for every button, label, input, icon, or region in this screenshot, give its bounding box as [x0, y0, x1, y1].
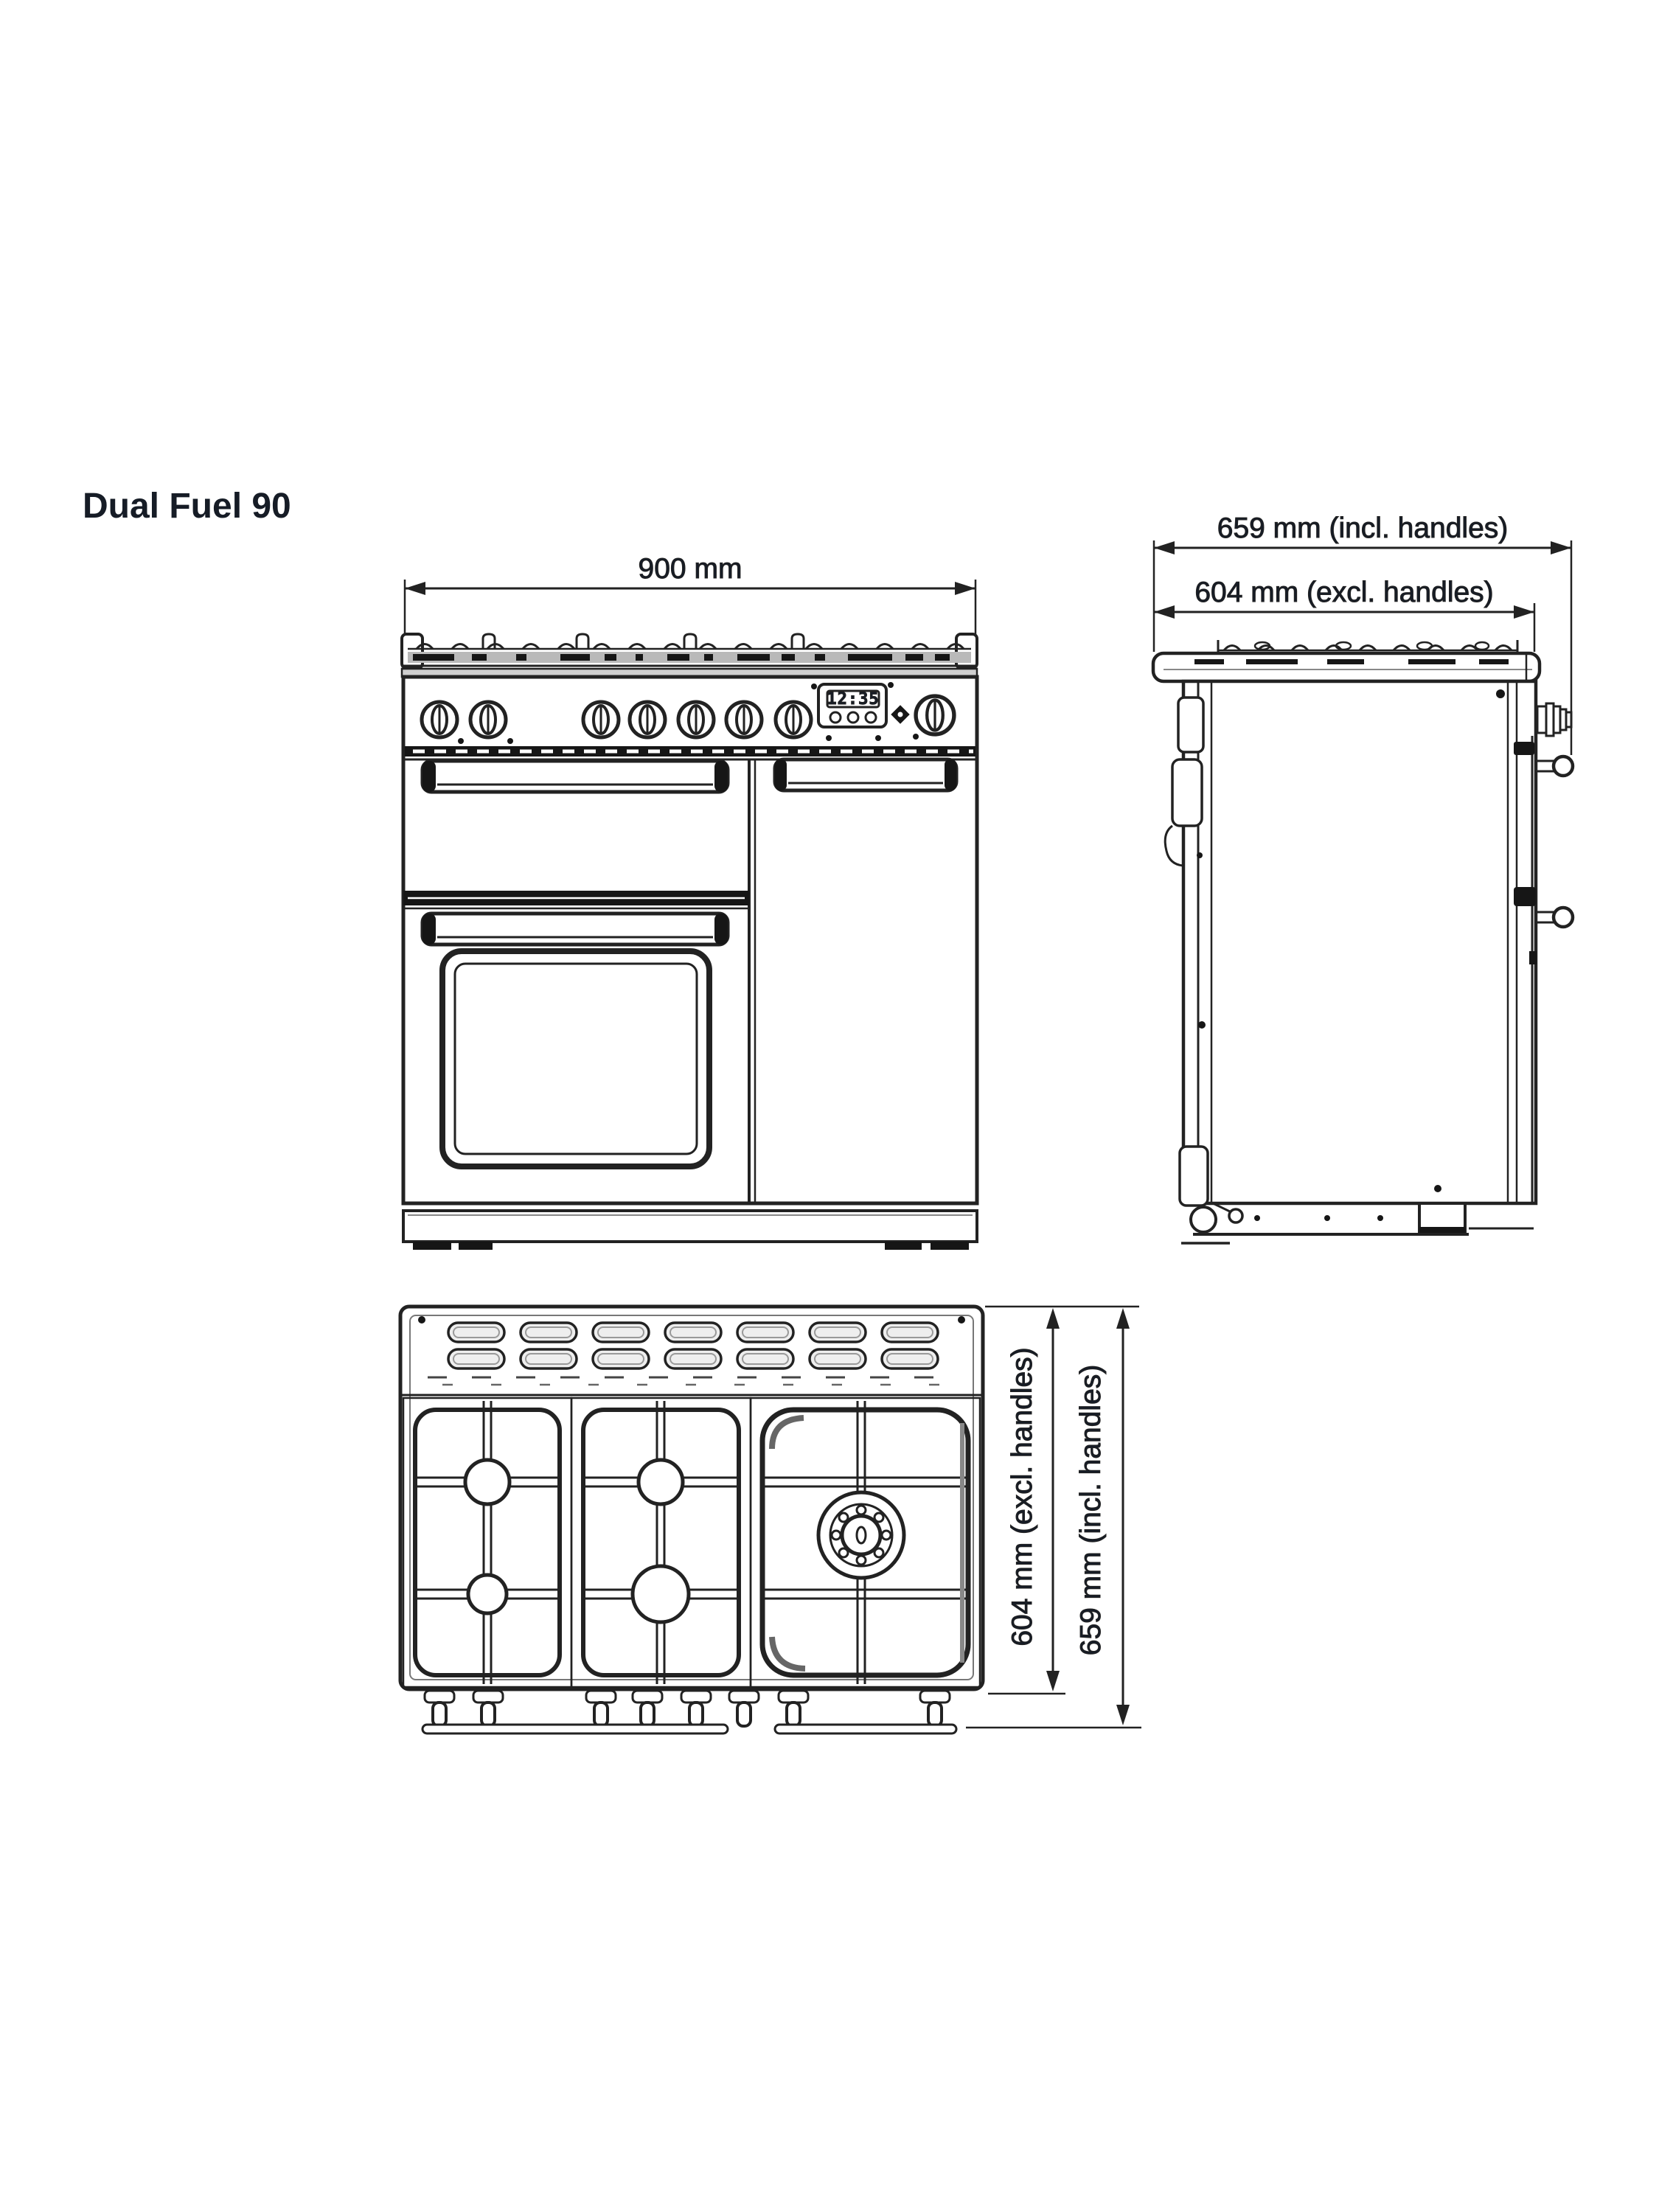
side-depth-excl-label: 604 mm (excl. handles): [1194, 577, 1493, 608]
side-body-outline: [1183, 681, 1536, 1203]
side-base: [1181, 1203, 1534, 1243]
side-view: 659 mm (incl. handles) 604 mm (excl. han…: [1153, 512, 1573, 1243]
top-depth-dimensions: 604 mm (excl. handles) 659 mm (incl. han…: [966, 1307, 1141, 1728]
arrow-up-icon: [1116, 1308, 1130, 1329]
front-width-label: 900 mm: [639, 553, 742, 585]
top-view: 604 mm (excl. handles) 659 mm (incl. han…: [400, 1307, 1141, 1733]
burner-large: [633, 1566, 689, 1622]
arrow-up-icon: [1046, 1308, 1060, 1329]
knob-5: [678, 702, 714, 737]
knob-2: [470, 702, 506, 737]
side-knob-profile: [1537, 703, 1571, 736]
arrow-right-icon: [1551, 541, 1571, 554]
front-view: 900 mm: [402, 553, 977, 1250]
top-depth-incl-label: 659 mm (incl. handles): [1075, 1365, 1107, 1656]
knob-1: [422, 702, 457, 737]
burner-medium: [639, 1460, 683, 1504]
knob-6: [726, 702, 762, 737]
side-handle-bottom: [1536, 908, 1573, 927]
grill-door-handle: [422, 761, 728, 792]
page: { "title": "Dual Fuel 90", "colors": { "…: [0, 0, 1659, 2212]
knob-8: [916, 696, 954, 734]
side-grate-profile: [1218, 640, 1517, 652]
arrow-right-icon: [955, 582, 975, 595]
clock-display: 12:35: [818, 684, 886, 727]
arrow-left-icon: [1154, 605, 1175, 619]
front-hob: [402, 634, 977, 677]
knob-3: [583, 702, 619, 737]
arrow-left-icon: [405, 582, 425, 595]
top-handle-left: [422, 1725, 728, 1733]
front-width-dimension: 900 mm: [405, 553, 975, 640]
arrow-right-icon: [1514, 605, 1534, 619]
burner-small: [468, 1575, 507, 1613]
tall-door-handle: [775, 759, 956, 790]
page-title: Dual Fuel 90: [83, 487, 291, 526]
oven-door-handle: [422, 914, 728, 945]
technical-drawing: Dual Fuel 90 900 mm: [0, 0, 1659, 2212]
burner-small: [465, 1460, 509, 1504]
knob-7: [776, 702, 811, 737]
top-depth-excl-label: 604 mm (excl. handles): [1006, 1347, 1038, 1646]
arrow-left-icon: [1154, 541, 1175, 554]
top-handle-right: [775, 1725, 956, 1733]
side-handle-top: [1536, 757, 1573, 776]
knob-4: [630, 702, 665, 737]
front-plinth: [403, 1211, 977, 1250]
wok-burner: [818, 1492, 904, 1578]
clock-digits: 12:35: [827, 690, 879, 709]
side-depth-incl-label: 659 mm (incl. handles): [1217, 512, 1509, 544]
side-hob: [1153, 640, 1540, 681]
caster-wheel-icon: [1191, 1207, 1216, 1232]
top-knobs: [422, 1691, 956, 1733]
arrow-down-icon: [1046, 1671, 1060, 1691]
front-grate-profile: [417, 634, 964, 649]
arrow-down-icon: [1116, 1705, 1130, 1725]
